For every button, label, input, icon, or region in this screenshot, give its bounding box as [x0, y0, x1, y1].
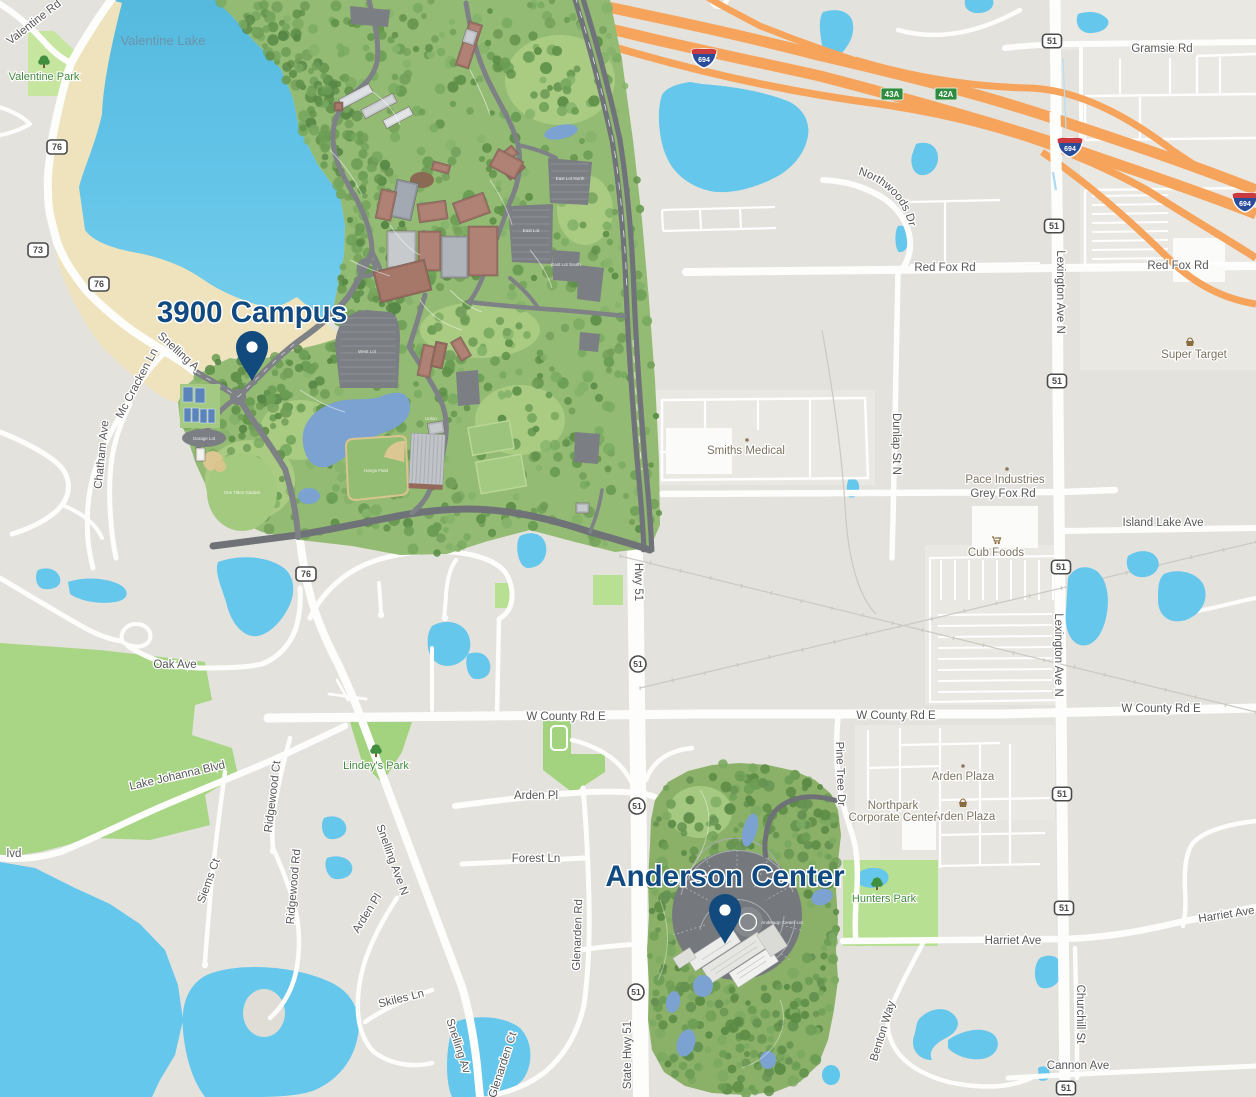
- svg-text:Cannon Ave: Cannon Ave: [1047, 1060, 1109, 1072]
- svg-text:Oak Ave: Oak Ave: [153, 659, 196, 671]
- svg-text:Smiths Medical: Smiths Medical: [707, 445, 785, 457]
- svg-text:Churchill St: Churchill St: [1074, 985, 1086, 1045]
- svg-text:W County Rd E: W County Rd E: [1121, 703, 1201, 715]
- svg-text:Anderson Center Lot: Anderson Center Lot: [761, 920, 803, 925]
- svg-text:Union: Union: [425, 416, 437, 421]
- svg-text:51: 51: [1059, 903, 1069, 913]
- svg-text:Hangs Field: Hangs Field: [364, 468, 389, 473]
- svg-text:Forest Ln: Forest Ln: [512, 853, 561, 865]
- svg-text:East Lot South: East Lot South: [551, 262, 581, 267]
- svg-text:Corporate Center: Corporate Center: [849, 812, 938, 824]
- svg-text:76: 76: [301, 569, 311, 579]
- svg-text:51: 51: [632, 801, 642, 811]
- svg-text:Glenarden Rd: Glenarden Rd: [571, 899, 585, 971]
- svg-text:Valentine Park: Valentine Park: [9, 71, 80, 83]
- svg-text:Island Lake Ave: Island Lake Ave: [1123, 517, 1204, 529]
- svg-text:694: 694: [1239, 201, 1251, 208]
- svg-text:76: 76: [94, 279, 104, 289]
- svg-text:51: 51: [1056, 562, 1066, 572]
- svg-text:51: 51: [1047, 36, 1057, 46]
- svg-text:Arden Plaza: Arden Plaza: [933, 811, 996, 823]
- svg-text:51: 51: [633, 659, 643, 669]
- svg-text:51: 51: [631, 987, 641, 997]
- svg-text:Pace Industries: Pace Industries: [965, 474, 1045, 486]
- svg-text:W County Rd E: W County Rd E: [856, 710, 936, 722]
- svg-text:Valentine Lake: Valentine Lake: [120, 33, 205, 48]
- svg-text:Lexington Ave N: Lexington Ave N: [1052, 613, 1064, 697]
- svg-text:State Hwy 51: State Hwy 51: [622, 1021, 634, 1089]
- svg-text:3900 Campus: 3900 Campus: [157, 296, 347, 329]
- svg-text:51: 51: [1049, 221, 1059, 231]
- svg-text:Northpark: Northpark: [868, 800, 919, 812]
- svg-text:West Lot: West Lot: [358, 349, 376, 354]
- svg-text:Super Target: Super Target: [1161, 349, 1227, 361]
- svg-text:Hwy 51: Hwy 51: [632, 563, 644, 601]
- svg-text:51: 51: [1052, 376, 1062, 386]
- svg-text:Dunlap St N: Dunlap St N: [890, 413, 902, 475]
- svg-text:694: 694: [698, 57, 710, 64]
- svg-text:One Tilton Garden: One Tilton Garden: [224, 490, 261, 495]
- svg-text:Anderson Center: Anderson Center: [605, 860, 845, 893]
- svg-text:Red Fox Rd: Red Fox Rd: [914, 262, 975, 274]
- svg-text:76: 76: [52, 142, 62, 152]
- svg-text:Arden Pl: Arden Pl: [514, 790, 558, 802]
- svg-text:Hunters Park: Hunters Park: [852, 893, 917, 905]
- svg-text:51: 51: [1061, 1083, 1071, 1093]
- svg-text:51: 51: [1057, 789, 1067, 799]
- svg-text:Cub Foods: Cub Foods: [968, 547, 1025, 559]
- svg-text:Red Fox Rd: Red Fox Rd: [1147, 260, 1208, 272]
- svg-text:Gramsie Rd: Gramsie Rd: [1131, 43, 1192, 55]
- svg-text:Arden Plaza: Arden Plaza: [932, 771, 995, 783]
- svg-text:Lexington Ave N: Lexington Ave N: [1054, 250, 1066, 334]
- svg-text:Grey Fox Rd: Grey Fox Rd: [970, 488, 1035, 500]
- svg-text:43A: 43A: [885, 90, 900, 99]
- svg-text:73: 73: [33, 245, 43, 255]
- svg-text:East Lot: East Lot: [523, 228, 540, 233]
- svg-text:W County Rd E: W County Rd E: [526, 711, 606, 723]
- svg-text:42A: 42A: [939, 90, 954, 99]
- svg-text:Pine Tree Dr: Pine Tree Dr: [833, 741, 847, 806]
- svg-text:Garage Lot: Garage Lot: [193, 436, 216, 441]
- svg-text:Harriet Ave: Harriet Ave: [985, 935, 1042, 947]
- svg-text:East Lot North: East Lot North: [556, 176, 585, 181]
- svg-text:lvd: lvd: [7, 848, 22, 860]
- svg-text:694: 694: [1064, 146, 1076, 153]
- svg-text:Lindey's Park: Lindey's Park: [343, 760, 409, 772]
